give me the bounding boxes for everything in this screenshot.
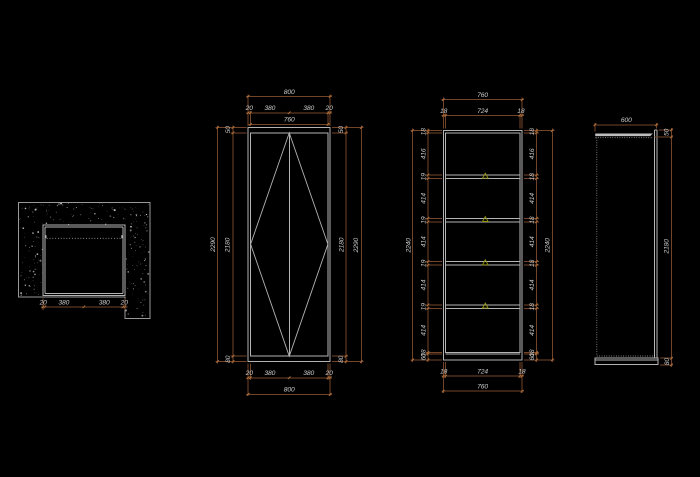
svg-text:18: 18 <box>517 108 525 115</box>
svg-text:20: 20 <box>120 299 129 306</box>
svg-text:760: 760 <box>477 92 488 99</box>
svg-text:2240: 2240 <box>405 238 412 254</box>
svg-text:800: 800 <box>284 387 295 394</box>
svg-text:414: 414 <box>529 325 536 336</box>
svg-text:20: 20 <box>245 370 254 377</box>
svg-text:18: 18 <box>421 128 428 136</box>
svg-text:380: 380 <box>264 370 275 377</box>
svg-text:2290: 2290 <box>353 237 360 253</box>
svg-text:80: 80 <box>338 355 345 363</box>
svg-text:416: 416 <box>529 148 536 159</box>
svg-text:19: 19 <box>421 173 428 181</box>
svg-text:380: 380 <box>303 105 314 112</box>
svg-text:19: 19 <box>421 259 428 267</box>
svg-text:80: 80 <box>664 358 671 366</box>
svg-text:19: 19 <box>421 303 428 311</box>
svg-text:2180: 2180 <box>224 237 231 253</box>
svg-text:414: 414 <box>421 279 428 290</box>
svg-text:60: 60 <box>421 353 428 361</box>
svg-text:414: 414 <box>529 193 536 204</box>
svg-text:20: 20 <box>245 105 254 112</box>
svg-text:50: 50 <box>663 128 670 136</box>
svg-text:414: 414 <box>529 236 536 247</box>
svg-text:760: 760 <box>284 117 295 124</box>
svg-text:18: 18 <box>529 216 536 224</box>
svg-text:380: 380 <box>99 299 110 306</box>
svg-text:18: 18 <box>440 108 448 115</box>
svg-text:18: 18 <box>529 173 536 181</box>
svg-text:414: 414 <box>529 279 536 290</box>
svg-text:414: 414 <box>421 325 428 336</box>
svg-text:2290: 2290 <box>210 237 217 253</box>
svg-text:800: 800 <box>284 89 295 96</box>
svg-text:18: 18 <box>440 369 448 376</box>
svg-text:414: 414 <box>421 236 428 247</box>
svg-text:414: 414 <box>421 193 428 204</box>
svg-text:18: 18 <box>529 303 536 311</box>
svg-text:80: 80 <box>225 355 232 363</box>
svg-text:2180: 2180 <box>338 237 345 253</box>
svg-text:19: 19 <box>421 216 428 224</box>
svg-text:760: 760 <box>477 384 488 391</box>
svg-text:60: 60 <box>529 353 536 361</box>
svg-text:18: 18 <box>518 369 526 376</box>
svg-text:20: 20 <box>39 299 48 306</box>
svg-text:20: 20 <box>324 370 333 377</box>
svg-text:724: 724 <box>477 369 488 376</box>
svg-text:50: 50 <box>338 126 345 134</box>
svg-text:380: 380 <box>58 299 69 306</box>
svg-text:18: 18 <box>529 128 536 136</box>
svg-text:20: 20 <box>324 105 333 112</box>
svg-text:600: 600 <box>621 117 632 124</box>
svg-text:50: 50 <box>225 126 232 134</box>
svg-text:2180: 2180 <box>664 239 671 255</box>
svg-text:724: 724 <box>477 108 488 115</box>
svg-text:380: 380 <box>264 105 275 112</box>
svg-text:2240: 2240 <box>545 238 552 254</box>
svg-text:18: 18 <box>529 259 536 267</box>
svg-text:380: 380 <box>303 370 314 377</box>
svg-text:416: 416 <box>421 148 428 159</box>
